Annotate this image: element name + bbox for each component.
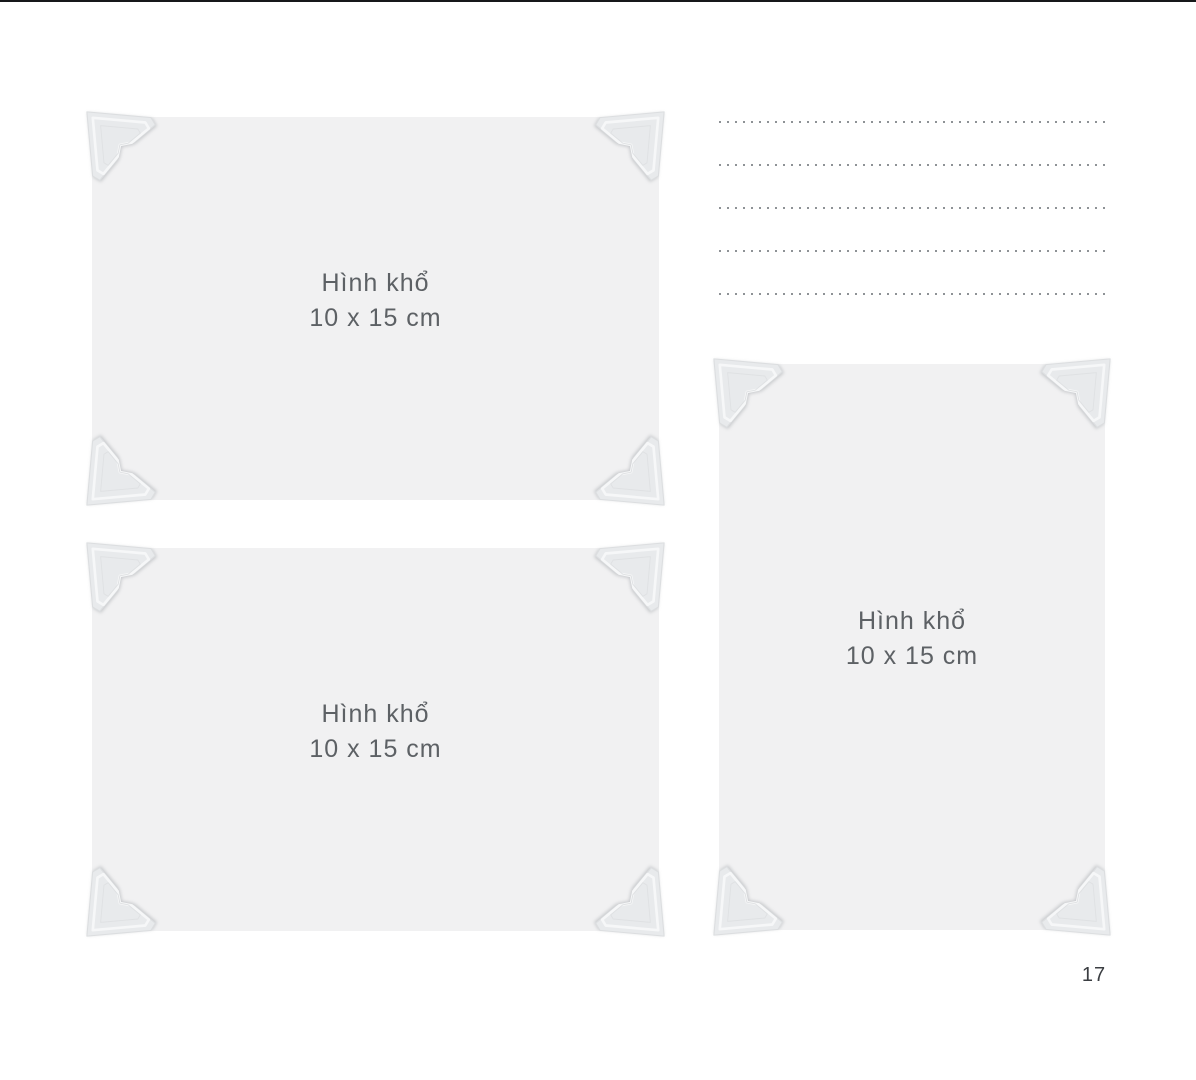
page-top-edge [0, 0, 1196, 2]
photo-corner-mount-icon [595, 109, 667, 181]
photo-slot-landscape-1: Hình khổ 10 x 15 cm [92, 117, 659, 500]
photo-size-label-line1: Hình khổ [846, 604, 978, 639]
photo-size-label-line1: Hình khổ [309, 266, 441, 301]
photo-corner-mount-icon [595, 436, 667, 508]
photo-size-label: Hình khổ 10 x 15 cm [309, 697, 441, 767]
photo-size-label-line2: 10 x 15 cm [846, 639, 978, 674]
photo-size-label-line2: 10 x 15 cm [309, 732, 441, 767]
photo-corner-mount-icon [84, 867, 156, 939]
notes-lines [719, 121, 1105, 336]
page-number: 17 [1078, 964, 1110, 987]
photo-corner-mount-icon [711, 866, 783, 938]
photo-corner-mount-icon [84, 109, 156, 181]
photo-corner-mount-icon [595, 867, 667, 939]
dotted-line [719, 121, 1105, 123]
photo-corner-mount-icon [1041, 866, 1113, 938]
dotted-line [719, 207, 1105, 209]
photo-size-label: Hình khổ 10 x 15 cm [309, 266, 441, 336]
dotted-line [719, 250, 1105, 252]
photo-size-label-line1: Hình khổ [309, 697, 441, 732]
photo-corner-mount-icon [84, 436, 156, 508]
photo-corner-mount-icon [595, 540, 667, 612]
dotted-line [719, 164, 1105, 166]
photo-slot-portrait: Hình khổ 10 x 15 cm [719, 364, 1105, 930]
photo-slot-landscape-2: Hình khổ 10 x 15 cm [92, 548, 659, 931]
photo-size-label: Hình khổ 10 x 15 cm [846, 604, 978, 674]
dotted-line [719, 293, 1105, 295]
photo-corner-mount-icon [711, 356, 783, 428]
photo-corner-mount-icon [84, 540, 156, 612]
photo-size-label-line2: 10 x 15 cm [309, 301, 441, 336]
photo-corner-mount-icon [1041, 356, 1113, 428]
